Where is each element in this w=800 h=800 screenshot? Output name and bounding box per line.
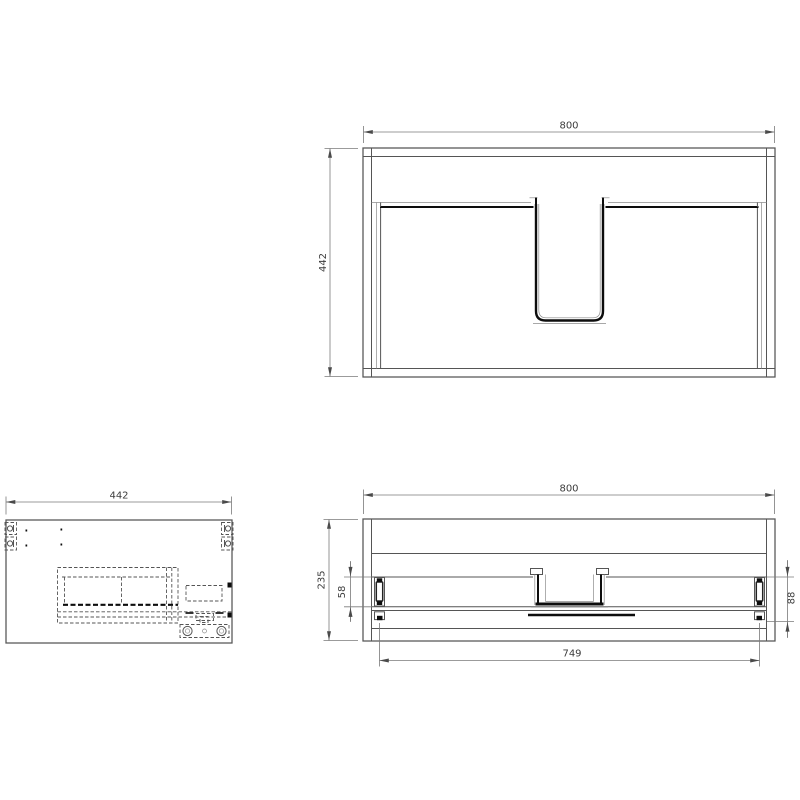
dim-label-front-left-offset: 58	[337, 586, 348, 599]
plan-carcass-outline	[363, 148, 775, 377]
dim-label-front-right-offset: 88	[787, 592, 798, 605]
hidden-runner-clip	[186, 613, 224, 623]
dim-label-front-width: 800	[559, 484, 578, 495]
side-view	[5, 520, 233, 643]
drawing-sheet: 800 442	[0, 0, 800, 800]
screw-mark	[26, 545, 28, 547]
hidden-drawer-outline	[58, 568, 179, 624]
plumbing-notch	[530, 198, 610, 324]
dim-label-side-depth: 442	[109, 491, 128, 502]
cad-drawing-canvas: 800 442	[0, 0, 800, 800]
plan-view-dimensions: 800 442	[318, 121, 775, 377]
front-view	[363, 519, 775, 641]
screw-mark	[26, 530, 28, 532]
dim-label-front-span: 749	[562, 649, 581, 660]
screw-mark	[61, 529, 63, 531]
side-view-dimensions: 442	[6, 491, 232, 515]
bracket-clip	[228, 583, 232, 588]
dim-label-plan-width: 800	[559, 121, 578, 132]
hanging-rail-left	[375, 578, 385, 621]
hidden-adjusters	[180, 625, 229, 638]
wall-bracket-icon	[5, 523, 17, 551]
bracket-clip	[228, 613, 232, 618]
screw-mark	[61, 544, 63, 546]
dim-label-plan-depth: 442	[318, 253, 329, 272]
dim-label-front-height: 235	[317, 570, 328, 589]
hidden-bracket-plate	[186, 586, 222, 602]
drain-channel-bracket	[531, 568, 609, 607]
hanging-rail-right	[755, 578, 765, 621]
plan-view	[363, 148, 775, 377]
wall-bracket-icon	[222, 523, 234, 551]
